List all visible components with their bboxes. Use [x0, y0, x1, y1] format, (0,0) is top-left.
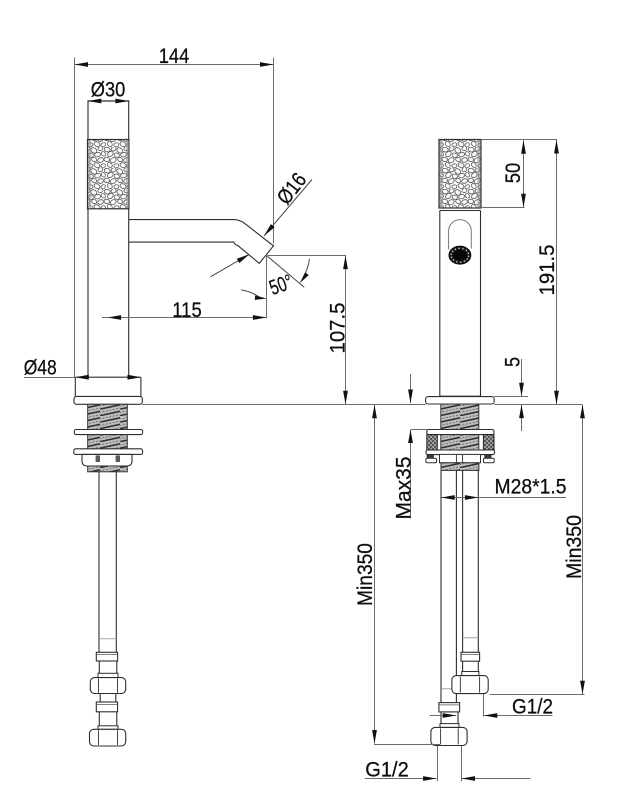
svg-text:50: 50 [502, 163, 525, 184]
svg-text:Ø30: Ø30 [91, 78, 126, 101]
svg-text:144: 144 [159, 45, 190, 68]
svg-text:Max35: Max35 [392, 457, 415, 520]
svg-text:M28*1.5: M28*1.5 [495, 476, 567, 499]
svg-text:Ø48: Ø48 [24, 357, 57, 380]
svg-text:Min350: Min350 [563, 515, 586, 579]
svg-text:5: 5 [501, 357, 524, 367]
svg-text:107.5: 107.5 [326, 303, 349, 354]
svg-text:115: 115 [172, 299, 202, 322]
svg-text:Min350: Min350 [354, 543, 377, 606]
svg-text:191.5: 191.5 [536, 245, 559, 296]
